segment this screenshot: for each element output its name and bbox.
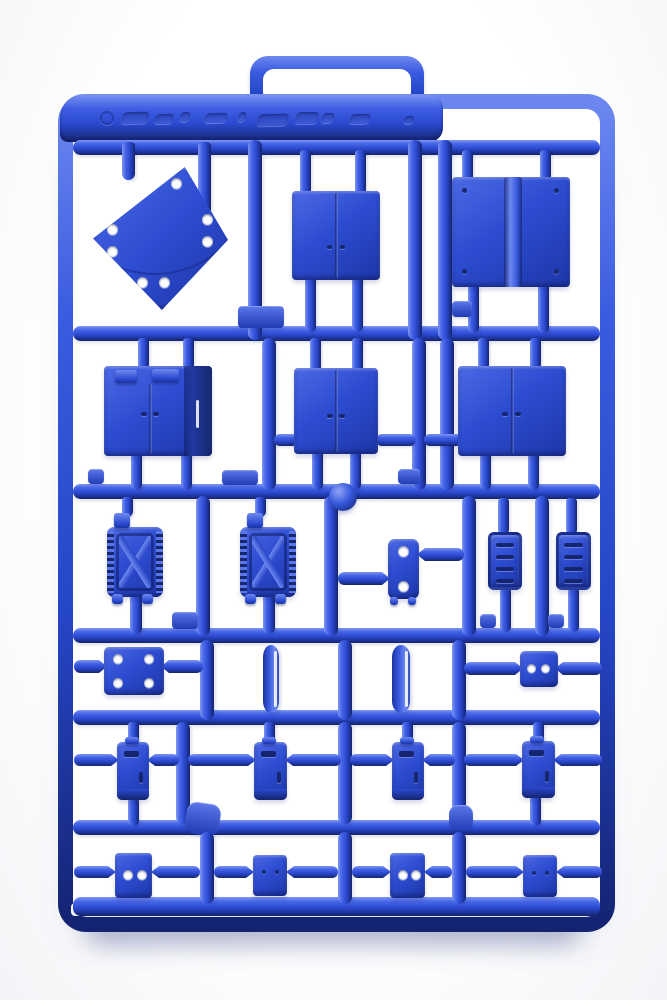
rivet [554,188,559,193]
hatch-top-tab [125,737,139,744]
hole [123,870,133,880]
door-handle [327,245,332,249]
sprue-stub [568,588,579,632]
sprue-stub [122,142,135,180]
part-door-panel-medium [294,368,378,454]
runner-horizontal [73,326,600,341]
part-connector-plate [520,651,558,687]
sprue-stub [310,338,321,372]
hatch-latch [139,772,143,783]
hole [398,581,409,592]
door-handle [153,412,159,416]
runner-horizontal [73,897,600,916]
sprue-arm [466,866,524,878]
sprue-stub [480,452,491,490]
part-curved-blade [392,645,410,713]
sprue-stub [350,450,361,490]
runner-vertical [412,338,426,490]
hatch-top-tab [400,737,414,744]
cabinet-side-slit [196,400,199,428]
embossed-logo-ring [100,111,114,125]
sprue-stub [130,594,142,634]
hatch-latch [414,772,418,783]
jerry-foot [275,594,286,604]
hatch-top-tab [262,737,276,744]
jerry-foot [142,594,153,604]
door-split [149,384,152,454]
hole [137,870,147,880]
hatch-flange [392,789,424,800]
hole [541,664,550,673]
hole [113,654,123,664]
sprue-arm [417,548,464,561]
door-handle [339,414,345,418]
sprue-arm [352,866,391,878]
jerry-cap [247,513,263,528]
part-square-plate-holes [115,853,152,898]
runner-vertical [452,640,466,720]
jerry-foot [112,594,123,604]
embossed-text-mark [257,114,290,127]
top-rail [60,94,443,142]
part-vent-grille [556,532,591,590]
embossed-text-mark [295,112,320,125]
embossed-text-mark [349,114,371,125]
sprue-arm [553,754,602,766]
door-split [335,370,338,452]
hole [202,214,213,225]
hole [527,664,536,673]
grille-slit [496,555,514,559]
part-door-panel-wide [458,366,566,456]
sprue-arm [464,662,523,675]
grille-slit [496,567,514,571]
latch-foot [390,597,398,605]
rivet [462,269,467,274]
runner-vertical [200,832,214,904]
jerry-cap [114,513,130,528]
hatch-latch [277,772,281,783]
sprue-stub [312,450,323,490]
part-latch-plate [388,539,419,599]
jerry-panel [116,533,154,591]
jerry-panel [249,533,287,591]
latch-foot [408,597,416,605]
grille-slit [564,543,583,547]
rivet [275,870,279,874]
hatch-slot [399,751,414,757]
door-handle [515,412,521,416]
sprue-stub [352,338,363,372]
runner-vertical [438,140,452,340]
hole [113,678,123,688]
hatch-slot [529,750,544,756]
runner-vertical [324,496,338,636]
gate-pad [548,614,564,628]
gate-pad [452,301,472,317]
runner-vertical [338,722,352,824]
sprue-stub [352,276,363,332]
runner-vertical [200,640,214,720]
runner-horizontal [73,820,600,835]
grille-slit [564,567,583,571]
door-split [511,368,514,454]
rivet [532,871,536,875]
runner-vertical [338,832,352,904]
runner-vertical [535,496,549,636]
sprue-arm [286,866,338,878]
jerry-ribs-right [289,531,296,593]
rivet [545,871,549,875]
cabinet-top-tab [115,370,137,383]
gate-pad [238,306,284,328]
gate-pad [398,469,420,484]
hole [398,870,408,880]
sprue-arm [350,754,394,766]
runner-vertical [452,832,466,904]
rivet [554,269,559,274]
hole [411,870,421,880]
gate-pad [480,614,496,628]
hatch-slot [261,751,276,757]
sprue-arm [424,434,462,446]
blade-highlight [405,651,408,707]
hatch-top-tab [530,736,544,743]
sprue-arm [214,866,254,878]
grille-slit [496,543,514,547]
sprue-arm [338,572,390,585]
part-hatch-door [522,741,555,798]
part-cabinet-box [104,366,212,456]
runner-vertical [440,338,454,490]
embossed-text-mark [121,112,150,125]
door-handle [327,414,333,418]
sprue-arm [74,866,116,878]
door-handle [502,412,508,416]
sprue-stub [528,452,539,490]
runner-horizontal [73,140,600,155]
sprue-arm [464,754,524,766]
jerry-ribs-left [240,531,247,593]
hole [159,277,170,288]
part-curved-blade [263,645,279,713]
runner-vertical [262,338,276,490]
sprue-stub [263,594,275,634]
part-jerry-can [107,527,163,597]
part-jerry-can [240,527,296,597]
grille-slit [496,579,514,583]
hatch-flange [254,789,287,800]
part-square-plate-holes [390,853,425,898]
door-handle [141,412,147,416]
part-square-plate-plain [523,855,557,897]
jerry-ribs-left [107,531,114,593]
sprue-stub [355,150,366,195]
sprue-arm [556,866,602,878]
sprue-stub [131,452,142,490]
part-hatch-door [392,742,424,800]
hole [171,178,182,189]
hole [202,236,213,247]
jerry-foot [245,594,256,604]
part-mounting-plate [104,647,164,695]
sprue-stub [566,498,577,535]
part-hatch-door [117,742,149,800]
sprue-stub [530,796,541,826]
blade-highlight [274,651,277,707]
jerry-ribs-right [156,531,163,593]
gate-pad [222,470,258,485]
part-hatch-door [254,742,287,800]
runner-horizontal [73,710,600,725]
sprue-arm [151,866,200,878]
door-handle [340,245,345,249]
hatch-latch [545,771,549,782]
part-vent-grille [488,532,522,590]
sprue-stub [305,276,316,332]
hole [398,546,409,557]
runner-vertical [408,140,422,340]
hole [144,654,154,664]
grille-slit [564,555,583,559]
hatch-flange [522,787,555,798]
rivet [262,870,266,874]
door-split [335,193,338,278]
gate-ball [329,483,357,511]
hinge-ridge [504,177,522,287]
part-square-plate-plain [253,855,287,896]
runner-junction-node [449,805,473,831]
part-double-door [292,191,380,280]
gate-pad [88,469,104,484]
sprue-stub [300,150,311,195]
sprue-stub [128,798,139,826]
hole [144,678,154,688]
runner-vertical [338,640,352,720]
sprue-stub [181,452,192,490]
sprue-stub [498,498,509,535]
sprue-arm [376,434,416,446]
sprue-arm [74,754,119,766]
sprue-arm [285,754,341,766]
sprue-stub [538,283,549,333]
embossed-text-mark [204,113,228,124]
hatch-slot [124,751,139,757]
grille-slit [564,579,583,583]
photo-canvas [0,0,667,1000]
part-hinged-panel [452,177,570,287]
hatch-flange [117,789,149,800]
runner-vertical [462,496,476,636]
sprue-arm [161,660,203,673]
rivet [462,188,467,193]
sprue-arm [555,662,602,675]
sprue-arm [188,754,256,766]
cabinet-top-tab [152,369,179,382]
runner-vertical [196,496,210,636]
gate-pad [172,612,198,629]
sprue-stub [500,588,511,632]
